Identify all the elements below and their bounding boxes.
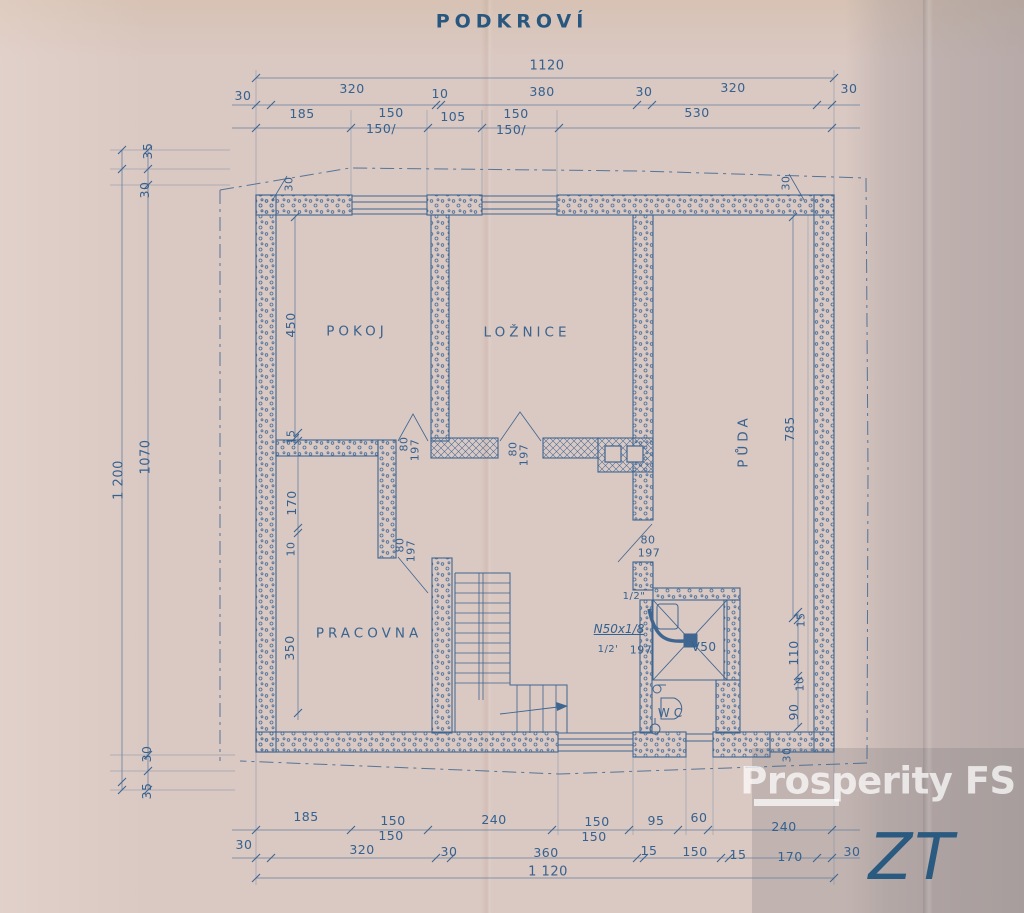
- watermark-underline: [754, 799, 839, 806]
- dim-left-30-top: 30: [139, 182, 152, 199]
- dim-bot-15-a: 15: [641, 845, 658, 858]
- dim-top-530: 530: [684, 107, 709, 120]
- pipe-n50: N50x1/8: [594, 623, 645, 635]
- dim-top-380: 380: [529, 86, 554, 99]
- dim-bot-1120: 1 120: [528, 866, 568, 879]
- room-puda: PŮDA: [737, 414, 751, 467]
- dim-bot-240-b: 240: [771, 821, 796, 834]
- blueprint-page: PODKROVÍ112030320103803032030185150150/1…: [0, 0, 1024, 913]
- dim-bot-150-bj: 150: [581, 831, 606, 844]
- dim-top-150-aj: 150/: [366, 123, 396, 136]
- dim-top-105: 105: [440, 111, 465, 124]
- pipe-half-b: 1/2': [598, 645, 619, 655]
- dim-bot-15-b: 15: [730, 849, 747, 862]
- dim-left-35-top: 35: [142, 143, 155, 160]
- dim-top-185: 185: [289, 108, 314, 121]
- dim-bot-320: 320: [349, 844, 374, 857]
- dim-left-35-bot: 35: [141, 783, 154, 800]
- dim-top-30-b: 30: [636, 86, 653, 99]
- door2-197: 197: [519, 444, 530, 467]
- dim-top-320-a: 320: [339, 83, 364, 96]
- plan-title: PODKROVÍ: [436, 13, 589, 32]
- dim-bot-150-a: 150: [380, 815, 405, 828]
- dim-top-1120: 1120: [529, 60, 564, 73]
- zt-mark: ZT: [869, 826, 956, 890]
- room-pokoj: POKOJ: [326, 325, 388, 339]
- room-loznice: LOŽNICE: [484, 326, 571, 340]
- room-pracovna: PRACOVNA: [316, 627, 422, 641]
- door3-197: 197: [406, 540, 417, 563]
- pipe-half-a: 1/2": [623, 592, 646, 602]
- dim-top-150-b: 150: [503, 108, 528, 121]
- dim-pokoj-450: 450: [285, 312, 298, 337]
- watermark-brand: Prosperity FS: [740, 763, 1015, 800]
- dim-int-350: 350: [284, 635, 297, 660]
- dim-int-15: 15: [286, 430, 297, 445]
- dim-int-170: 170: [286, 490, 299, 515]
- label-overlay: PODKROVÍ112030320103803032030185150150/1…: [0, 0, 1024, 913]
- dim-bot-30-c: 30: [844, 846, 861, 859]
- dim-right-10: 10: [795, 677, 806, 692]
- dim-bot-150-aj: 150: [378, 830, 403, 843]
- dim-bot-185: 185: [293, 811, 318, 824]
- door4-80: 80: [641, 535, 656, 546]
- dim-top-10: 10: [432, 88, 449, 101]
- dim-wall-30-nw: 30: [284, 177, 295, 192]
- dim-top-150-a: 150: [378, 107, 403, 120]
- dim-bot-95: 95: [648, 815, 665, 828]
- dim-left-1070: 1070: [140, 439, 153, 474]
- dim-bot-360: 360: [533, 847, 558, 860]
- dim-bot-30-b: 30: [441, 846, 458, 859]
- dim-bot-240-a: 240: [481, 814, 506, 827]
- door4-197: 197: [638, 548, 661, 559]
- dim-left-1200: 1 200: [113, 460, 126, 500]
- dim-bot-60: 60: [691, 812, 708, 825]
- dim-bot-150-c: 150: [682, 846, 707, 859]
- room-wc: WC: [658, 707, 686, 719]
- dim-right-110: 110: [788, 640, 801, 665]
- dim-right-90: 90: [788, 704, 801, 721]
- dim-int-10: 10: [286, 542, 297, 557]
- pipe-197: 197: [630, 645, 653, 656]
- door1-197: 197: [410, 439, 421, 462]
- dim-bot-30-a: 30: [236, 839, 253, 852]
- dim-left-30-bot: 30: [141, 746, 154, 763]
- dim-bot-150-b: 150: [584, 816, 609, 829]
- dim-bot-170: 170: [777, 851, 802, 864]
- dim-top-320-b: 320: [720, 82, 745, 95]
- dim-top-30-a: 30: [235, 90, 252, 103]
- dim-puda-785: 785: [784, 416, 797, 441]
- dim-top-30-c: 30: [841, 83, 858, 96]
- dim-right-15: 15: [796, 613, 807, 628]
- dim-wall-30-ne: 30: [781, 176, 792, 191]
- dim-top-150-bj: 150/: [496, 124, 526, 137]
- fixture-v50: V50: [692, 641, 717, 653]
